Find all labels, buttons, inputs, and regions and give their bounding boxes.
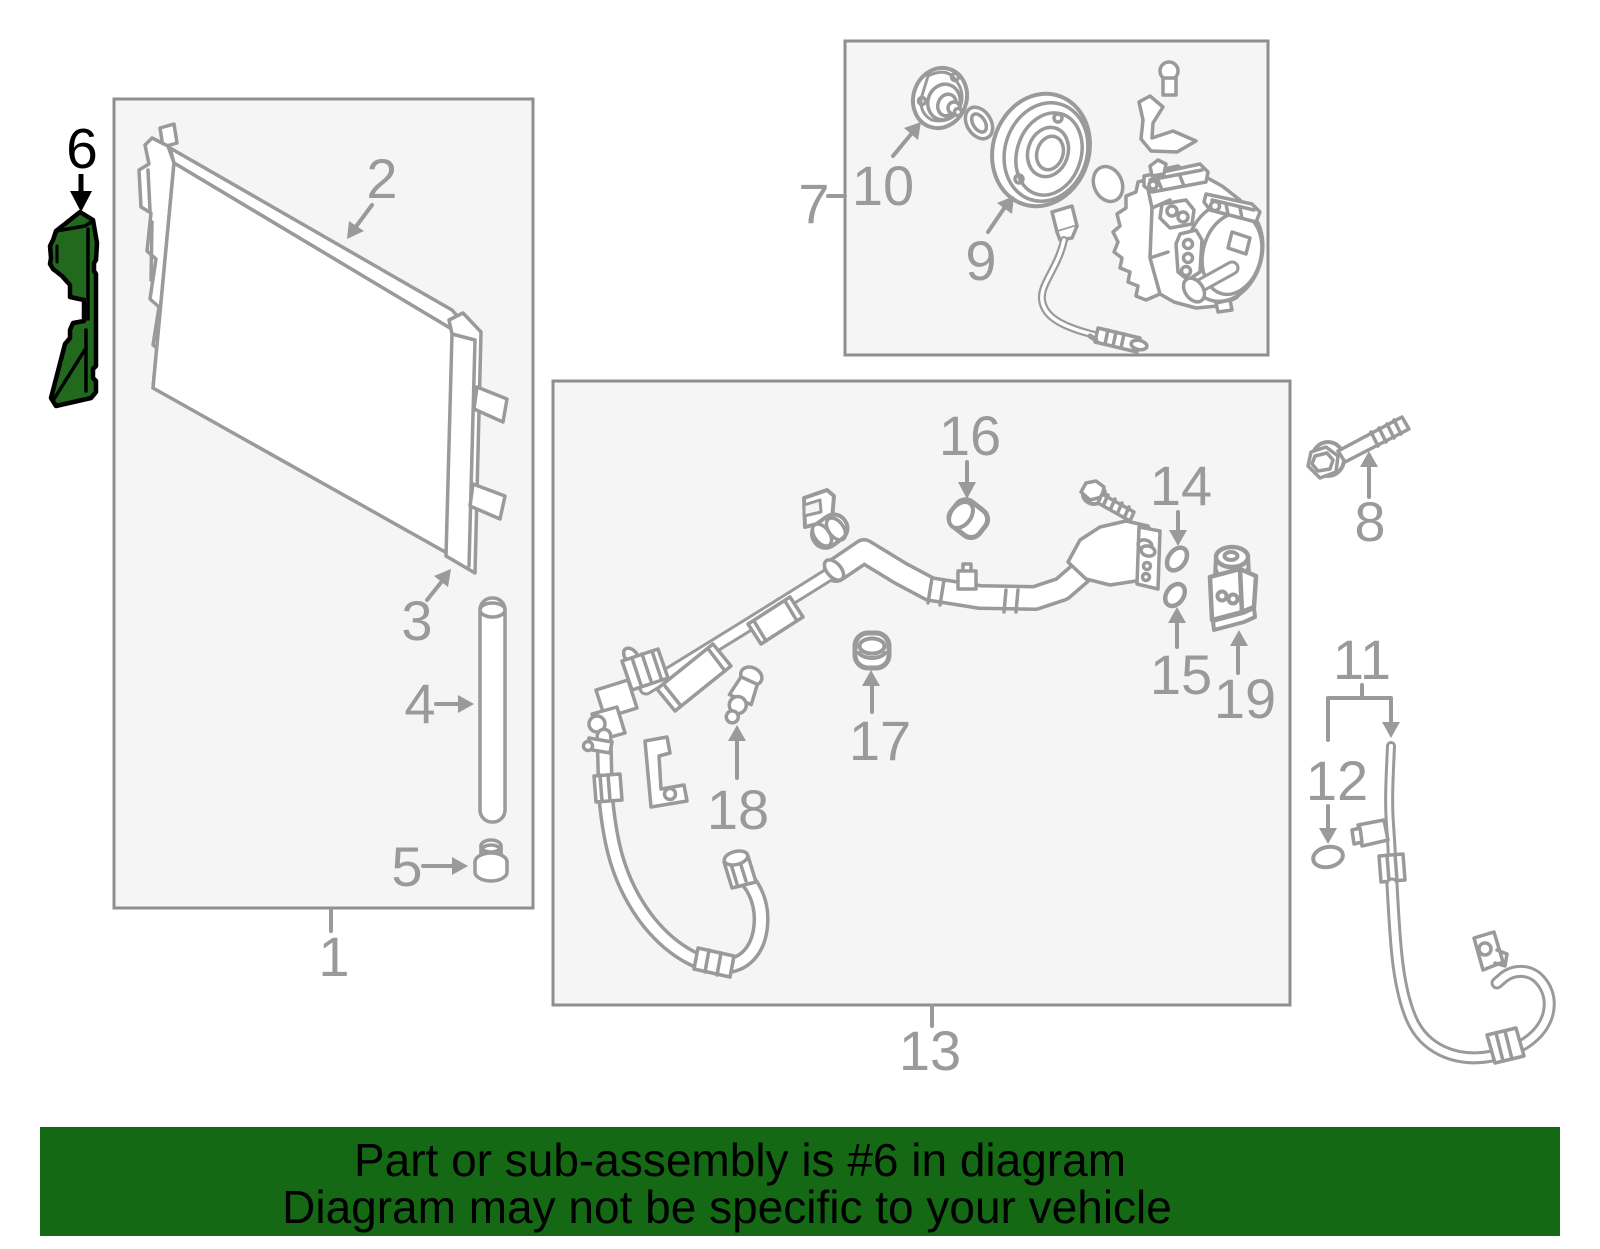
svg-text:Diagram may not be specific to: Diagram may not be specific to your vehi… [282, 1181, 1172, 1233]
svg-text:11: 11 [1333, 628, 1391, 691]
svg-text:16: 16 [939, 404, 1001, 467]
svg-text:8: 8 [1354, 490, 1385, 553]
svg-text:4: 4 [404, 672, 435, 735]
svg-text:15: 15 [1150, 643, 1212, 706]
svg-text:10: 10 [852, 154, 914, 217]
svg-text:12: 12 [1306, 749, 1368, 812]
svg-text:14: 14 [1150, 454, 1212, 517]
svg-text:2: 2 [366, 147, 397, 210]
svg-text:9: 9 [965, 229, 996, 292]
svg-text:13: 13 [899, 1019, 961, 1082]
svg-text:19: 19 [1214, 667, 1276, 730]
svg-text:7: 7 [798, 172, 829, 235]
svg-text:1: 1 [318, 925, 349, 988]
svg-text:5: 5 [391, 835, 422, 898]
svg-text:6: 6 [66, 117, 98, 181]
svg-text:17: 17 [849, 709, 911, 772]
svg-text:Part or sub-assembly is #6 in: Part or sub-assembly is #6 in diagram [354, 1134, 1126, 1186]
svg-text:18: 18 [707, 778, 769, 841]
